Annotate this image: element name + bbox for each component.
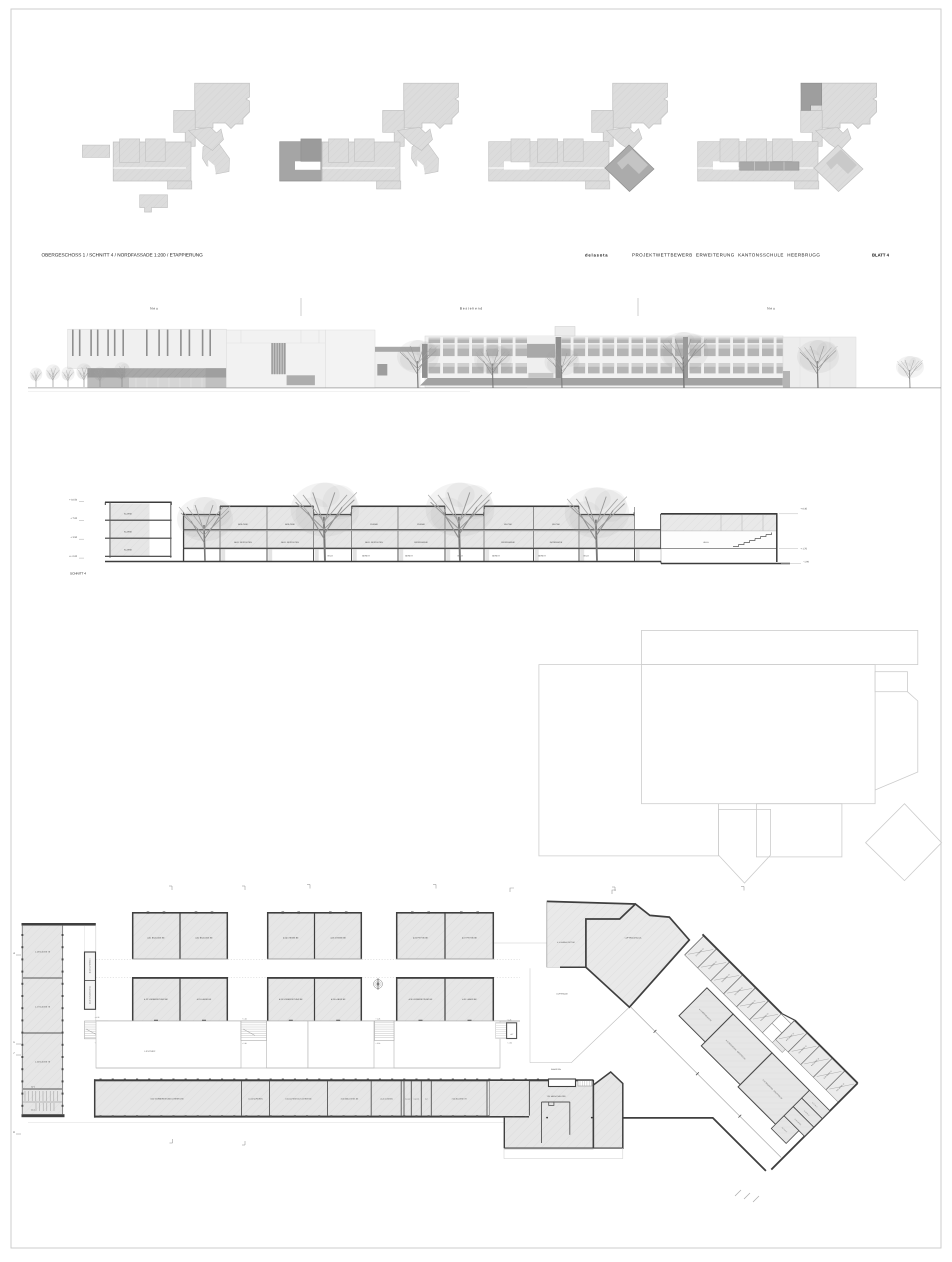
svg-text:BLATT 4: BLATT 4 [872,253,890,258]
svg-text:+ 2.50: + 2.50 [376,1042,381,1045]
svg-text:PHYSIK: PHYSIK [552,523,560,526]
svg-text:B e s t e h e n d: B e s t e h e n d [460,307,483,311]
svg-text:0.33 HW: 0.33 HW [414,1099,420,1101]
svg-text:BEREIT: BEREIT [538,555,546,558]
svg-text:10.20 KOPIEREN: 10.20 KOPIEREN [248,1098,263,1101]
svg-text:GEOGRAPHIE: GEOGRAPHIE [501,541,515,544]
svg-text:+ 1.25: + 1.25 [242,1017,247,1020]
svg-text:+ 7.00: + 7.00 [71,517,78,520]
svg-text:N e u: N e u [767,307,775,311]
svg-text:PROJEKTWETTBEWERB ERWEITERUNG: PROJEKTWETTBEWERB ERWEITERUNG KANTONSSCH… [632,253,820,258]
svg-text:+ 1.75: + 1.75 [801,547,808,550]
svg-text:+ 1.25: + 1.25 [95,1016,100,1019]
svg-text:PHYSIK: PHYSIK [504,523,512,526]
svg-text:4.31 LABOR BE: 4.31 LABOR BE [462,998,477,1001]
svg-text:BEREIT: BEREIT [405,555,413,558]
svg-text:4.02 BIOLOGIE BE: 4.02 BIOLOGIE BE [195,937,213,940]
svg-text:1.18 KLASSE 78: 1.18 KLASSE 78 [35,951,51,954]
svg-text:7.01 MEDIATHEK 260: 7.01 MEDIATHEK 260 [547,1095,566,1098]
svg-text:4.01 BIOLOGIE BE: 4.01 BIOLOGIE BE [147,937,165,940]
svg-text:4.28 VORBEREITUNG BE: 4.28 VORBEREITUNG BE [279,998,303,1001]
svg-text:AULA: AULA [703,541,709,544]
svg-text:4.12 WERKSTATT BE: 4.12 WERKSTATT BE [557,941,575,944]
svg-text:4.29 LABOR BE: 4.29 LABOR BE [331,998,346,1001]
svg-text:4.22 VORBEREITUNG BE: 4.22 VORBEREITUNG BE [144,998,168,1001]
svg-text:BILD. GESTALTEN: BILD. GESTALTEN [281,541,299,544]
svg-text:N e u: N e u [150,307,158,311]
svg-text:LUFTRAUM: LUFTRAUM [557,993,568,996]
svg-text:+ 1.25: + 1.25 [376,1017,381,1020]
svg-text:BIOLOGIE: BIOLOGIE [285,523,295,526]
svg-text:BILD. GESTALTEN: BILD. GESTALTEN [365,541,383,544]
svg-text:OBERGESCHOSS 1 / SCHNITT 4 / N: OBERGESCHOSS 1 / SCHNITT 4 / NORDFASSADE… [42,253,204,258]
svg-text:GEOGRAPHIE: GEOGRAPHIE [414,541,428,544]
svg-text:WF 6: WF 6 [31,1085,35,1088]
svg-text:KLASSE: KLASSE [124,513,133,516]
svg-text:4.07 PHYSIK BE: 4.07 PHYSIK BE [462,937,478,940]
svg-text:CHEMIE: CHEMIE [370,523,379,526]
svg-text:8.01 AUFENTHALT LEHRER BE: 8.01 AUFENTHALT LEHRER BE [285,1098,312,1101]
svg-text:+ 3.50: + 3.50 [71,536,78,539]
svg-text:8.03 BIBLIOTHEK BE: 8.03 BIBLIOTHEK BE [341,1098,359,1101]
svg-text:1.16 KLASSE 78: 1.16 KLASSE 78 [35,1061,51,1064]
svg-text:+ 10.50: + 10.50 [69,498,77,501]
svg-text:1.17 KLASSE 78: 1.17 KLASSE 78 [35,1006,51,1009]
svg-text:CHEMIE: CHEMIE [417,523,426,526]
svg-text:VELO: VELO [327,555,333,558]
svg-text:- 1.90: - 1.90 [803,560,810,563]
svg-text:BEREIT: BEREIT [492,555,500,558]
svg-text:BIOLOGIE: BIOLOGIE [238,523,248,526]
svg-text:+ 2.50: + 2.50 [242,1042,247,1045]
svg-text:4.30 VORBEREITUNG BE: 4.30 VORBEREITUNG BE [409,998,433,1001]
svg-text:INFORMATIK: INFORMATIK [550,541,563,544]
svg-text:0.34: 0.34 [425,1099,428,1101]
svg-text:KLASSE: KLASSE [124,548,133,551]
svg-text:+/- 0.00: +/- 0.00 [69,555,78,558]
svg-text:VELO: VELO [583,555,589,558]
svg-text:8.02 VORBEREITUNG LEHRER 190: 8.02 VORBEREITUNG LEHRER 190 [150,1098,184,1101]
svg-text:LUFTRAUM AULA: LUFTRAUM AULA [625,937,642,940]
svg-text:BEREIT: BEREIT [362,555,370,558]
svg-text:RAMPE 6%: RAMPE 6% [551,1068,561,1071]
svg-text:delasota: delasota [585,253,608,258]
svg-text:4.23 LABOR BE: 4.23 LABOR BE [197,998,212,1001]
svg-text:4.04 CHEMIE BE: 4.04 CHEMIE BE [283,937,299,940]
svg-text:SCHNITT 4: SCHNITT 4 [70,572,86,576]
svg-text:0.32 GR: 0.32 GR [405,1099,410,1101]
svg-text:4.06 PHYSIK BE: 4.06 PHYSIK BE [413,937,429,940]
svg-text:KLASSE: KLASSE [124,530,133,533]
svg-text:7.24 KLASSE 78: 7.24 KLASSE 78 [451,1098,467,1101]
svg-text:LICHTHOF: LICHTHOF [145,1050,157,1053]
svg-text:+ 6.35: + 6.35 [801,508,808,511]
svg-text:WC 6: WC 6 [31,1109,35,1112]
svg-text:BILD. GESTALTEN: BILD. GESTALTEN [234,541,252,544]
svg-text:10.36 SCHULTEXTE 14: 10.36 SCHULTEXTE 14 [89,986,92,1004]
svg-text:10.35 KOPIEREN 9: 10.35 KOPIEREN 9 [89,959,92,974]
svg-text:4.05 CHEMIE BE: 4.05 CHEMIE BE [330,937,346,940]
